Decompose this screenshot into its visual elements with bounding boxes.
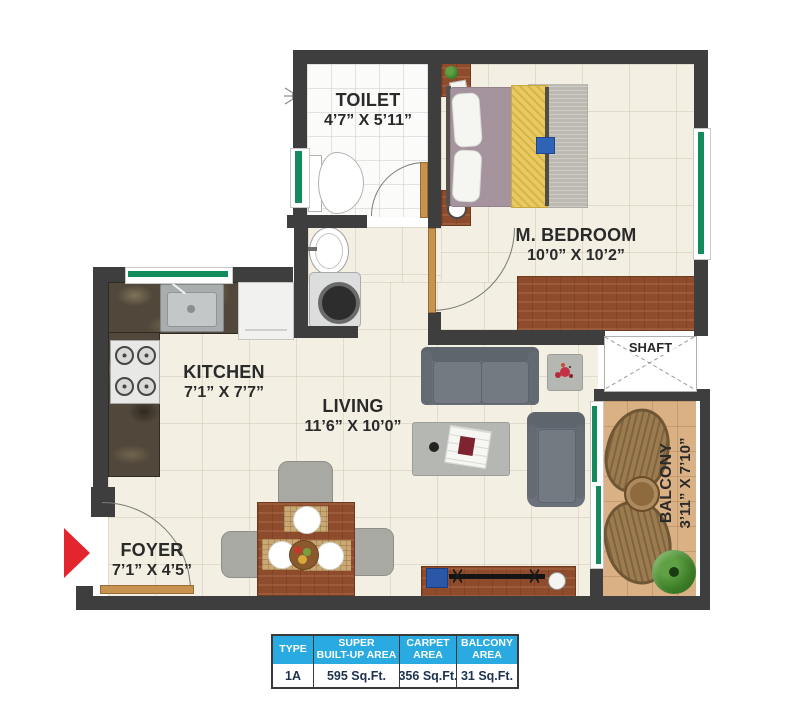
- side-table: [547, 354, 583, 391]
- balcony-plant: [652, 550, 696, 594]
- burner: [115, 346, 134, 365]
- shaft-label: SHAFT: [626, 340, 675, 355]
- fridge-handle: [245, 329, 287, 331]
- burner: [115, 377, 134, 396]
- area-table-header-carpet: CARPETAREA: [399, 636, 456, 664]
- room-label-bedroom: M. BEDROOM 10’0” X 10’2”: [516, 225, 637, 265]
- room-label-balcony: BALCONY 3’11” X 7’10”: [658, 438, 694, 529]
- wall-nook-left: [294, 228, 308, 338]
- balcony-table: [624, 476, 660, 512]
- toilet-door-leaf: [420, 162, 428, 218]
- wall-bedroom-bottom: [428, 330, 605, 345]
- wall-toilet-bottom: [287, 215, 367, 228]
- tv-console: [421, 566, 576, 598]
- toilet-dims: 4’7” X 5’11”: [324, 112, 412, 130]
- header-balcony-line2: AREA: [472, 650, 502, 662]
- sofa-cushion: [433, 361, 482, 404]
- washbasin-inner: [315, 233, 343, 269]
- bed-book: [536, 137, 555, 154]
- wall-toilet-left-upper: [293, 50, 307, 148]
- room-label-toilet: TOILET 4’7” X 5’11”: [324, 90, 412, 130]
- wall-kitchen-left: [93, 267, 108, 489]
- wall-kitchen-top-right: [231, 267, 293, 282]
- bed-pillow: [452, 149, 483, 202]
- entrance-door-leaf: [100, 585, 194, 594]
- armchair-arm: [527, 424, 537, 498]
- plate: [293, 506, 321, 534]
- kitchen-sink-drain: [187, 305, 195, 313]
- nightstand-plant: [445, 66, 458, 79]
- fruit: [294, 546, 302, 554]
- sofa-arm: [421, 351, 432, 405]
- armchair-arm: [575, 424, 585, 498]
- room-label-living: LIVING 11’6” X 10’0”: [305, 396, 402, 436]
- bed-pillow: [451, 92, 483, 148]
- sofa: [421, 347, 539, 405]
- living-dims: 11’6” X 10’0”: [305, 418, 402, 436]
- wall-toilet-bedroom-divider: [428, 50, 441, 228]
- burner: [137, 346, 156, 365]
- bedroom-window-glass: [698, 132, 704, 254]
- room-label-kitchen: KITCHEN 7’1” X 7’7”: [183, 362, 264, 402]
- wall-bedroom-right-lower: [694, 257, 708, 336]
- tv-foot: [530, 569, 539, 583]
- toilet-name: TOILET: [324, 90, 412, 111]
- fruit: [298, 555, 307, 564]
- plate: [316, 542, 344, 570]
- flower-vase: [560, 367, 570, 377]
- balcony-name: BALCONY: [658, 438, 676, 529]
- header-super-line2: BUILT-UP AREA: [317, 650, 397, 662]
- media-box: [426, 568, 448, 588]
- area-table-header-type: TYPE: [273, 636, 313, 664]
- speaker: [548, 572, 566, 590]
- area-table-header-super-builtup: SUPERBUILT-UP AREA: [313, 636, 399, 664]
- area-table-header-balcony: BALCONYAREA: [456, 636, 517, 664]
- area-summary-table: TYPE SUPERBUILT-UP AREA CARPETAREA BALCO…: [271, 634, 519, 689]
- wall-nook-bottom: [294, 326, 358, 338]
- kitchen-name: KITCHEN: [183, 362, 264, 383]
- wall-bedroom-right-upper: [694, 50, 708, 128]
- header-carpet-line2: AREA: [413, 650, 443, 662]
- foyer-dims: 7’1” X 4’5”: [112, 562, 192, 580]
- balcony-plant-center: [669, 567, 679, 577]
- area-table-value-type: 1A: [273, 664, 313, 687]
- bedroom-name: M. BEDROOM: [516, 225, 637, 246]
- kitchen-sink: [160, 284, 224, 332]
- foyer-name: FOYER: [112, 540, 192, 561]
- stove: [110, 340, 160, 404]
- fruit-bowl: [289, 540, 319, 570]
- wall-top: [293, 50, 708, 64]
- coffee-table-decor: [429, 442, 439, 452]
- living-name: LIVING: [305, 396, 402, 417]
- dining-chair: [352, 528, 394, 576]
- balcony-dims: 3’11” X 7’10”: [677, 438, 694, 529]
- fridge: [238, 282, 294, 340]
- area-table-value-carpet: 356 Sq.Ft.: [399, 664, 456, 687]
- armchair-seat: [538, 429, 576, 503]
- burner: [137, 377, 156, 396]
- wall-bottom: [76, 596, 710, 610]
- balcony-sliding-door-panel: [592, 406, 597, 482]
- floor-plan-page: SHAFT TOILET 4’7” X 5’11” M. BEDROOM 10’…: [0, 0, 787, 725]
- bedroom-dims: 10’0” X 10’2”: [516, 247, 637, 265]
- wardrobe: [517, 276, 696, 331]
- kitchen-dims: 7’1” X 7’7”: [183, 384, 264, 402]
- area-table-value-super-builtup: 595 Sq.Ft.: [313, 664, 399, 687]
- area-table-value-balcony: 31 Sq.Ft.: [456, 664, 517, 687]
- sofa-back: [421, 347, 539, 361]
- room-label-foyer: FOYER 7’1” X 4’5”: [112, 540, 192, 580]
- washbasin: [309, 227, 349, 275]
- dining-chair: [221, 531, 261, 578]
- coffee-table: [412, 422, 510, 476]
- wall-balcony-right: [700, 389, 710, 610]
- shaft-box: SHAFT: [604, 336, 697, 392]
- bedroom-door-leaf: [428, 228, 436, 313]
- kitchen-window-glass: [128, 271, 228, 277]
- washing-machine-drum: [318, 282, 360, 324]
- balcony-sliding-door-panel: [596, 486, 601, 564]
- toilet-window-glass: [295, 151, 302, 203]
- entry-direction-arrow: [64, 528, 90, 578]
- tv-foot: [453, 569, 462, 583]
- wall-balcony-corner: [590, 566, 603, 598]
- wall-bottom-left-corner: [76, 586, 93, 610]
- header-type-line1: TYPE: [279, 644, 306, 656]
- dining-chair: [278, 461, 333, 507]
- magazine-cover: [458, 436, 476, 456]
- washing-machine: [309, 272, 361, 328]
- sofa-cushion: [481, 361, 529, 404]
- sofa-arm: [528, 351, 539, 405]
- armchair: [527, 412, 585, 507]
- washbasin-tap: [308, 247, 317, 251]
